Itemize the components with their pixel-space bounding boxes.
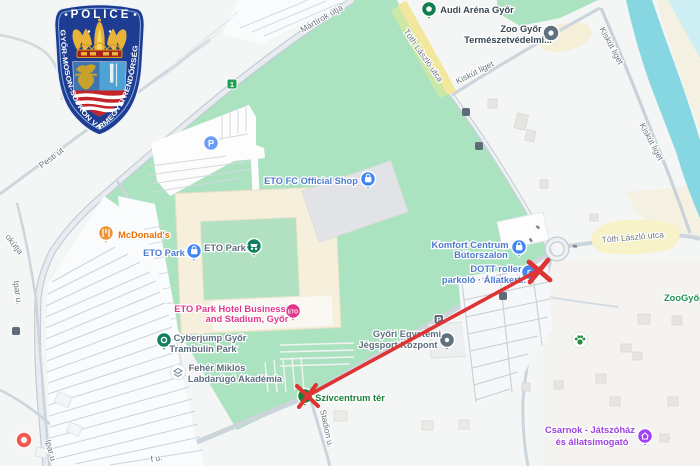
svg-text:Bútorszalon: Bútorszalon	[454, 250, 508, 260]
svg-text:POLICE: POLICE	[71, 9, 132, 21]
svg-text:and Stadium, Győr: and Stadium, Győr	[206, 314, 289, 324]
svg-text:Csarnok - Játszóház: Csarnok - Játszóház	[545, 425, 635, 435]
svg-text:ETO Park: ETO Park	[143, 248, 186, 258]
svg-text:ETO FC Official Shop: ETO FC Official Shop	[264, 176, 358, 186]
svg-text:Cyberjump Győr: Cyberjump Győr	[174, 333, 247, 343]
svg-text:McDonald's: McDonald's	[118, 230, 170, 240]
svg-text:ETO Park Hotel Business: ETO Park Hotel Business	[174, 304, 285, 314]
svg-text:P: P	[208, 139, 215, 150]
svg-text:Labdarúgó Akadémia: Labdarúgó Akadémia	[188, 374, 283, 384]
svg-text:DOTT roller: DOTT roller	[470, 264, 522, 274]
svg-text:és állatsimogató: és állatsimogató	[556, 437, 629, 447]
svg-text:Zoo Győr: Zoo Győr	[500, 24, 542, 34]
svg-text:Audi Aréna Győr: Audi Aréna Győr	[440, 5, 514, 15]
svg-text:Fehér Miklós: Fehér Miklós	[189, 363, 246, 373]
svg-text:Komfort Centrum: Komfort Centrum	[432, 240, 509, 250]
svg-text:1: 1	[230, 80, 234, 89]
svg-text:Szívcentrum tér: Szívcentrum tér	[315, 393, 385, 403]
svg-text:Természetvédelmi...: Természetvédelmi...	[464, 35, 552, 45]
svg-text:ZooGyőr: ZooGyőr	[664, 293, 700, 303]
svg-text:Trambulin Park: Trambulin Park	[169, 344, 237, 354]
svg-text:ETO Park: ETO Park	[204, 243, 247, 253]
svg-text:ETO: ETO	[288, 310, 298, 316]
